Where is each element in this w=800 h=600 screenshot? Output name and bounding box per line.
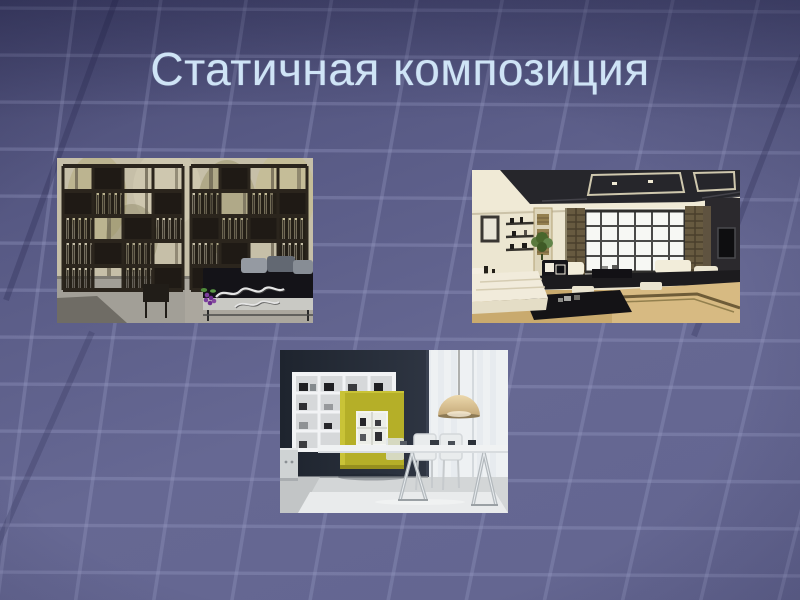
photo-bookshelf-room-divider <box>57 158 313 323</box>
left-sofa <box>472 268 548 314</box>
presentation-slide: Статичная композиция <box>0 0 800 600</box>
small-cabinet <box>280 448 298 481</box>
slide-title: Статичная композиция <box>0 42 800 96</box>
floor-cushion <box>640 282 662 290</box>
coffered-ceiling <box>472 170 740 210</box>
photo-modern-interior-yellow-cabinet <box>280 350 508 513</box>
photo-japanese-living-room <box>472 170 740 323</box>
